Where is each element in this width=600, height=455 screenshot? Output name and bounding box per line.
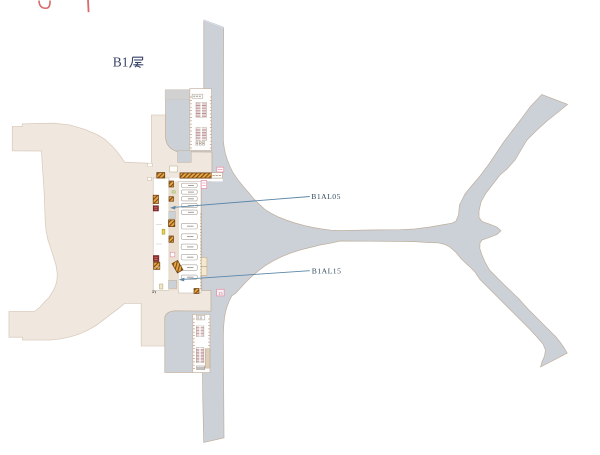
svg-text:B1AL05: B1AL05	[311, 192, 341, 201]
svg-text:B1: B1	[113, 55, 129, 70]
svg-text:B1AL15: B1AL15	[312, 266, 342, 275]
